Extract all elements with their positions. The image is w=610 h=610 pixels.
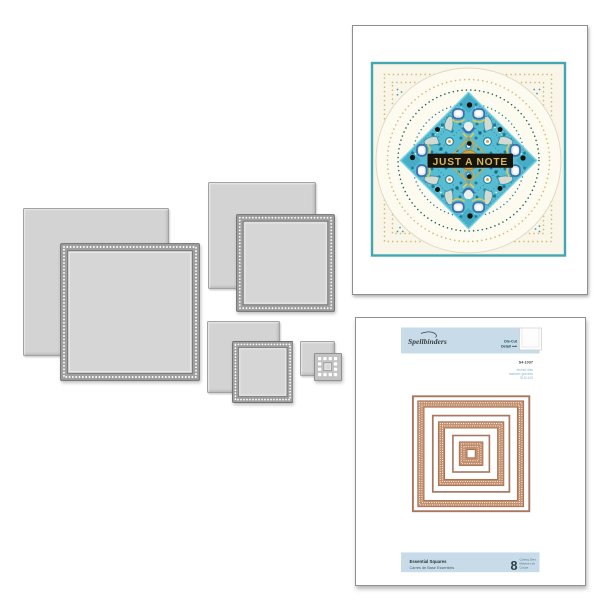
svg-text:S4-1037: S4-1037 [518,360,532,364]
svg-text:Detail ⟶: Detail ⟶ [501,343,518,348]
svg-text:Carrés de Base Essentiels: Carrés de Base Essentiels [409,566,454,570]
svg-text:JUST A NOTE: JUST A NOTE [433,157,508,168]
svg-text:Spellbinders: Spellbinders [408,337,447,346]
svg-text:Coupe: Coupe [519,565,528,569]
svg-text:Essential Squares: Essential Squares [409,559,447,564]
svg-text:Die-Cut: Die-Cut [504,339,518,343]
svg-text:8: 8 [510,559,517,573]
svg-text:SLM-100: SLM-100 [520,376,533,380]
